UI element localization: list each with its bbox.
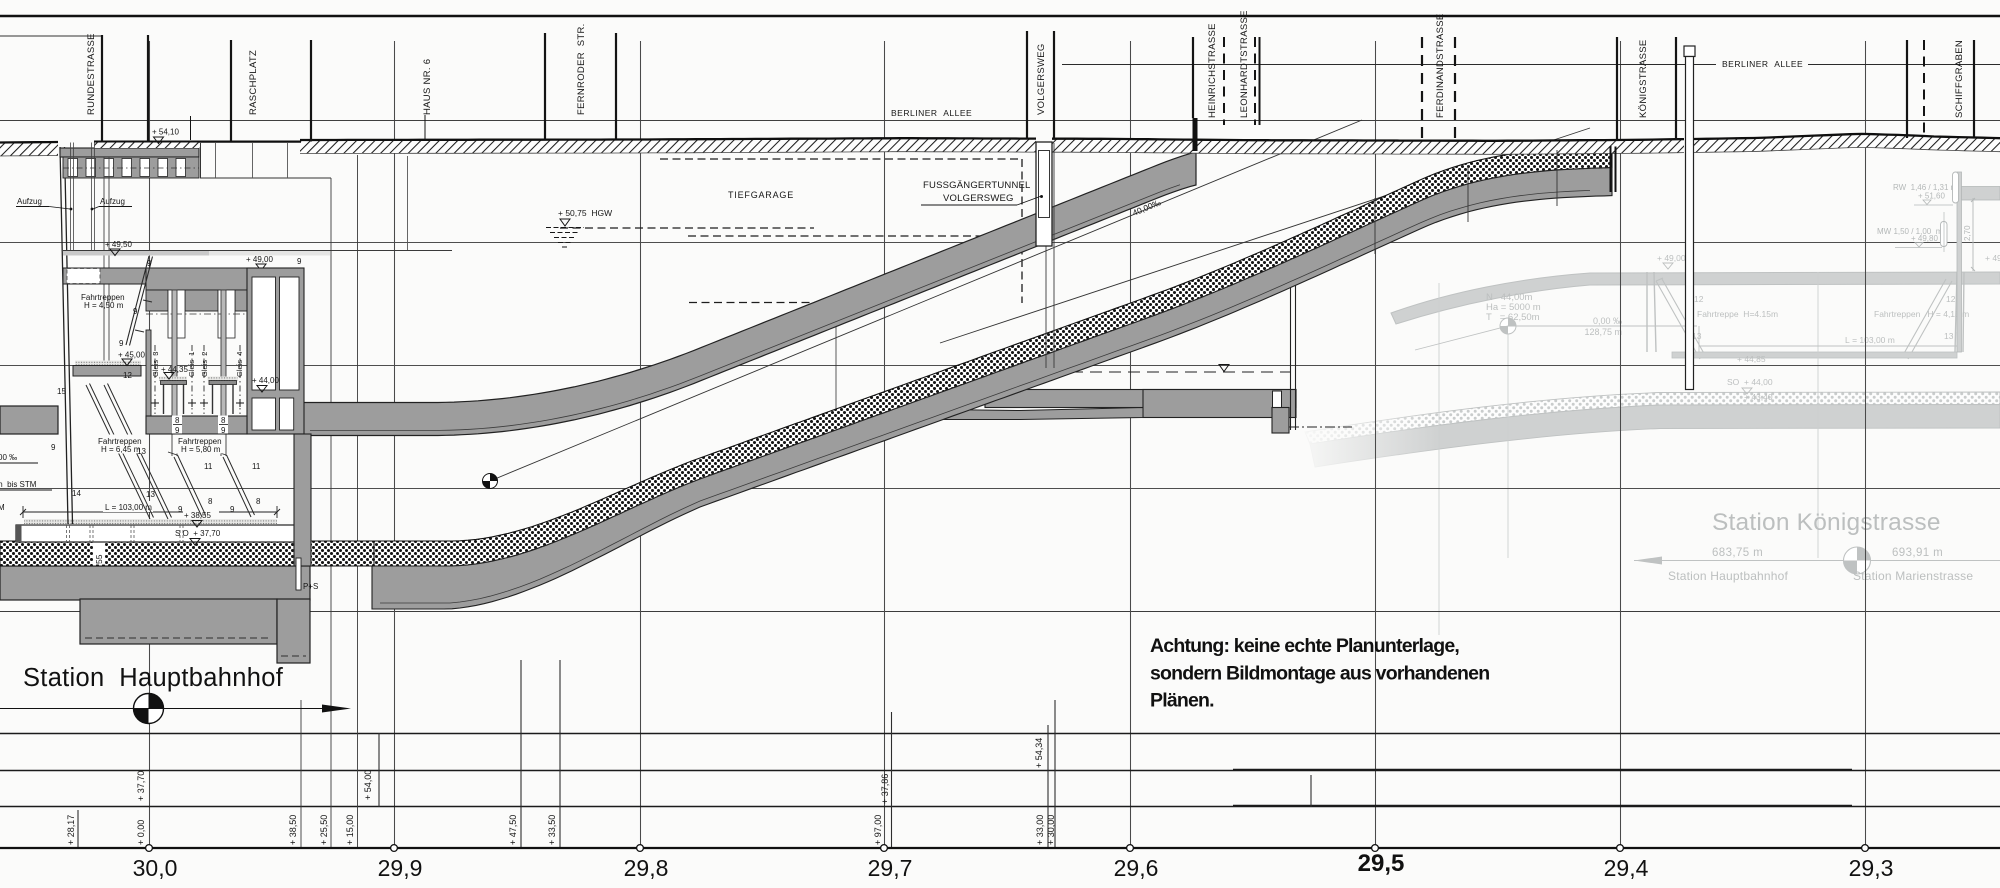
svg-text:Station Marienstrasse: Station Marienstrasse [1853, 569, 1973, 583]
svg-text:Achtung: keine echte Planunter: Achtung: keine echte Planunterlage, [1150, 635, 1459, 657]
svg-text:12: 12 [1694, 294, 1704, 304]
svg-text:RASCHPLATZ: RASCHPLATZ [248, 50, 259, 115]
svg-text:+ 49,00: + 49,00 [246, 255, 273, 264]
svg-text:9: 9 [119, 339, 124, 348]
svg-text:TIEFGARAGE: TIEFGARAGE [728, 190, 794, 200]
svg-text:29,6: 29,6 [1114, 855, 1159, 881]
svg-text:+ 97,00: + 97,00 [873, 815, 883, 845]
svg-text:11: 11 [252, 462, 261, 471]
svg-text:29,5: 29,5 [1358, 850, 1405, 877]
svg-text:Station Hauptbahnhof: Station Hauptbahnhof [1668, 569, 1789, 583]
svg-text:128,75 m: 128,75 m [1584, 327, 1622, 337]
svg-text:Aufzug: Aufzug [100, 197, 125, 206]
svg-text:29,3: 29,3 [1849, 855, 1894, 881]
svg-text:9: 9 [221, 426, 226, 435]
svg-text:8: 8 [175, 416, 180, 425]
svg-text:Fahrtreppen H = 4,15 m: Fahrtreppen H = 4,15 m [1874, 309, 1969, 319]
svg-text:+ 49,00: + 49,00 [1657, 253, 1686, 263]
svg-text:FERDINANDSTRASSE: FERDINANDSTRASSE [1435, 13, 1446, 118]
svg-text:8: 8 [256, 497, 261, 506]
svg-text:+ 47,50: + 47,50 [508, 815, 518, 845]
svg-text:FUSSGÄNGERTUNNEL: FUSSGÄNGERTUNNEL [923, 180, 1031, 191]
svg-text:+ 49,50: + 49,50 [105, 240, 132, 249]
svg-text:SCHIFFGRABEN: SCHIFFGRABEN [1954, 40, 1965, 118]
svg-text:+ 45,00: + 45,00 [118, 351, 145, 360]
svg-text:H = 4,50 m: H = 4,50 m [84, 301, 124, 310]
svg-text:9: 9 [133, 307, 138, 316]
svg-text:L = 103,00 m: L = 103,00 m [105, 503, 152, 512]
svg-text:BERLINER ALLEE: BERLINER ALLEE [1722, 59, 1803, 69]
svg-text:9: 9 [175, 426, 180, 435]
svg-text:+ 33,00: + 33,00 [1035, 815, 1045, 845]
svg-text:29,8: 29,8 [624, 855, 669, 881]
svg-text:Gleis 1: Gleis 1 [187, 352, 196, 377]
svg-text:15: 15 [57, 387, 66, 396]
svg-text:55: 55 [94, 554, 104, 564]
svg-text:11: 11 [204, 462, 213, 471]
svg-text:m bis STM: m bis STM [0, 480, 37, 489]
svg-text:Gleis 3: Gleis 3 [151, 352, 160, 377]
svg-text:BERLINER ALLEE: BERLINER ALLEE [891, 108, 972, 118]
svg-text:P+S: P+S [303, 582, 318, 591]
svg-text:+ 51,60: + 51,60 [1918, 192, 1945, 201]
svg-text:+ 33,50: + 33,50 [547, 815, 557, 845]
svg-text:H = 6,45 m: H = 6,45 m [101, 445, 141, 454]
svg-text:29,4: 29,4 [1604, 855, 1649, 881]
svg-text:+ 0,00: + 0,00 [136, 820, 146, 845]
svg-text:8: 8 [208, 497, 213, 506]
svg-text:SO + 44,00: SO + 44,00 [1727, 377, 1773, 387]
svg-text:T = 62,50m: T = 62,50m [1486, 312, 1540, 323]
svg-text:30,0: 30,0 [133, 855, 178, 881]
svg-text:Fahrtreppe H=4.15m: Fahrtreppe H=4.15m [1697, 309, 1778, 319]
svg-text:+ 54,10: + 54,10 [152, 128, 179, 137]
svg-text:Station Hauptbahnhof: Station Hauptbahnhof [23, 664, 284, 692]
svg-text:RUNDESTRASSE: RUNDESTRASSE [86, 33, 97, 115]
svg-text:HAUS NR. 6: HAUS NR. 6 [422, 59, 433, 115]
svg-text:Aufzug: Aufzug [17, 197, 42, 206]
svg-text:+ 15,00: + 15,00 [345, 815, 355, 845]
svg-text:Gleis 2: Gleis 2 [200, 352, 209, 377]
svg-text:+ 49,80: + 49,80 [1911, 234, 1938, 243]
svg-text:Station Königstrasse: Station Königstrasse [1712, 509, 1941, 536]
svg-text:9: 9 [51, 443, 56, 452]
svg-text:+ 50,75 HGW: + 50,75 HGW [558, 208, 612, 218]
svg-text:Plänen.: Plänen. [1150, 690, 1214, 712]
svg-text:29,9: 29,9 [378, 855, 423, 881]
svg-text:9: 9 [230, 505, 235, 514]
svg-text:693,91 m: 693,91 m [1892, 547, 1943, 559]
svg-text:KÖNIGSTRASSE: KÖNIGSTRASSE [1638, 39, 1649, 118]
svg-text:13: 13 [137, 447, 146, 456]
svg-text:9: 9 [297, 257, 302, 266]
svg-text:9: 9 [178, 505, 183, 514]
svg-text:+ 37,86: + 37,86 [880, 774, 890, 804]
svg-text:9: 9 [147, 259, 152, 268]
svg-text:8: 8 [221, 416, 226, 425]
svg-text:M: M [0, 503, 5, 512]
svg-text:14: 14 [72, 489, 81, 498]
svg-text:00 ‰: 00 ‰ [0, 453, 17, 462]
svg-text:+ 54,00: + 54,00 [363, 770, 373, 800]
svg-text:HEINRICHSTRASSE: HEINRICHSTRASSE [1207, 23, 1218, 118]
svg-text:+ 38,50: + 38,50 [288, 815, 298, 845]
svg-text:+ 44,00: + 44,00 [252, 376, 279, 385]
svg-text:FERNRODER STR.: FERNRODER STR. [576, 23, 587, 115]
svg-text:+ 43,40: + 43,40 [1744, 392, 1773, 402]
svg-text:+ 37,70: + 37,70 [136, 771, 146, 801]
svg-text:+ 28,17: + 28,17 [66, 815, 76, 845]
svg-text:12: 12 [1946, 294, 1956, 304]
svg-text:+ 49,: + 49, [1985, 253, 2000, 263]
svg-text:+ 38,55: + 38,55 [184, 511, 211, 520]
svg-text:VOLGERSWEG: VOLGERSWEG [943, 193, 1014, 204]
svg-text:sondern Bildmontage aus vorhan: sondern Bildmontage aus vorhandenen [1150, 663, 1489, 685]
svg-text:2,70: 2,70 [1963, 225, 1972, 241]
svg-text:29,7: 29,7 [868, 855, 913, 881]
svg-text:VOLGERSWEG: VOLGERSWEG [1036, 43, 1047, 115]
svg-text:+ 54,34: + 54,34 [1034, 738, 1044, 768]
svg-text:Gleis 4: Gleis 4 [235, 352, 244, 377]
svg-text:LEONHARDTSTRASSE: LEONHARDTSTRASSE [1239, 10, 1250, 118]
svg-text:12: 12 [123, 371, 132, 380]
svg-text:0,00 ‰: 0,00 ‰ [1593, 316, 1622, 326]
svg-text:+ 25,50: + 25,50 [319, 815, 329, 845]
svg-text:13: 13 [1944, 331, 1954, 341]
svg-text:+ 44,85: + 44,85 [1737, 354, 1766, 364]
svg-text:683,75 m: 683,75 m [1712, 547, 1763, 559]
svg-text:+ 30,00: + 30,00 [1046, 815, 1056, 845]
svg-text:L = 103,00 m: L = 103,00 m [1845, 335, 1895, 345]
svg-text:13: 13 [146, 490, 155, 499]
svg-text:S O + 37,70: S O + 37,70 [175, 529, 221, 538]
svg-text:H = 5,80 m: H = 5,80 m [181, 445, 221, 454]
